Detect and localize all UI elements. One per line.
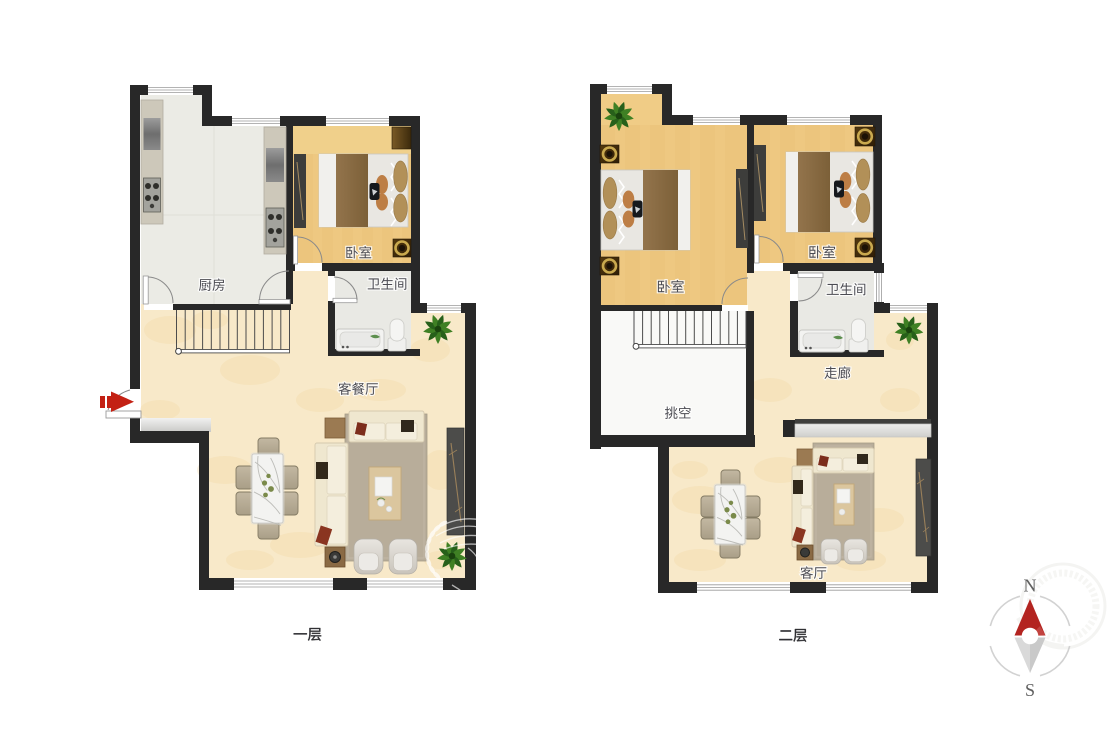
svg-text:N: N: [1024, 576, 1037, 596]
svg-text:S: S: [1025, 680, 1035, 700]
